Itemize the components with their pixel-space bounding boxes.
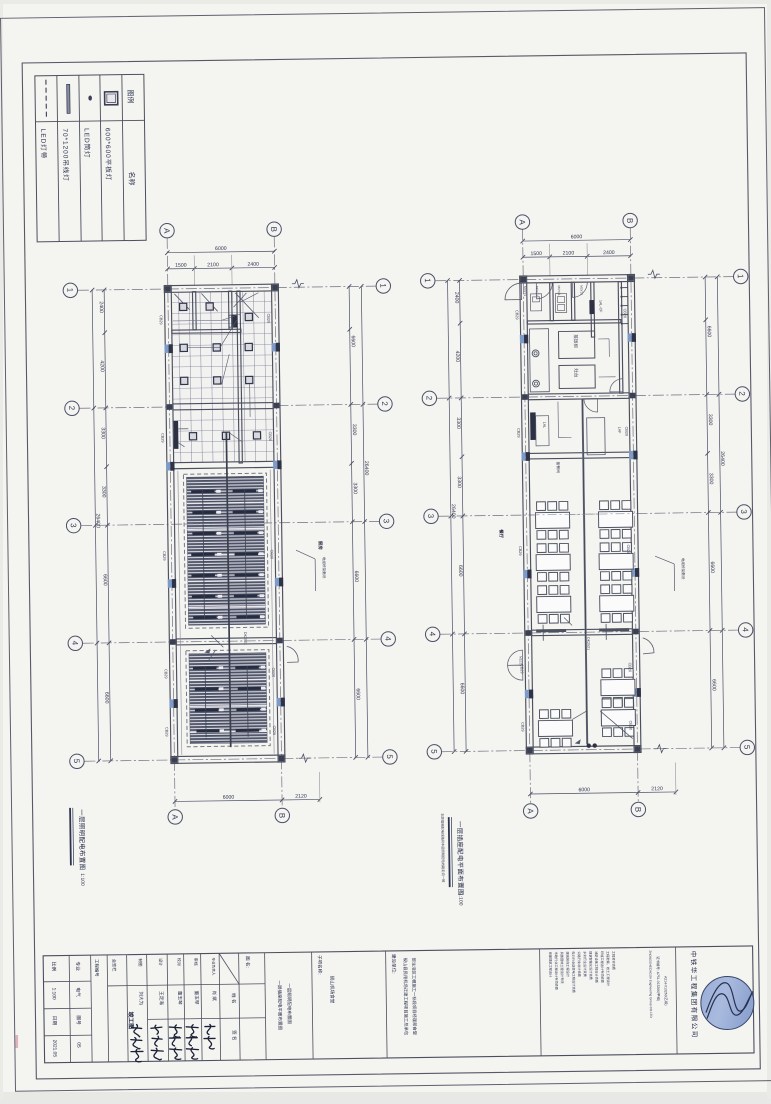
- svg-text:6600: 6600: [457, 565, 463, 577]
- svg-text:B: B: [633, 807, 642, 812]
- svg-text:市政行业工程设计专项资质: 市政行业工程设计专项资质: [554, 952, 560, 991]
- svg-text:6000: 6000: [578, 787, 590, 793]
- svg-text:证书编号: A751-013266(甲级): 证书编号: A751-013266(甲级): [656, 956, 662, 1001]
- svg-text:1AF: 1AF: [617, 427, 621, 434]
- svg-text:1:100: 1:100: [457, 893, 463, 906]
- svg-text:CB20: CB20: [269, 550, 273, 560]
- svg-text:6600: 6600: [103, 692, 109, 704]
- svg-text:CB29: CB29: [164, 727, 168, 737]
- svg-text:A: A: [170, 814, 179, 820]
- svg-text:公路行业设计资质: 公路行业设计资质: [577, 951, 582, 977]
- svg-text:2021.05: 2021.05: [51, 1040, 57, 1058]
- svg-text:4: 4: [383, 636, 392, 641]
- svg-text:5: 5: [429, 749, 438, 754]
- svg-text:1AL-CF: 1AL-CF: [599, 300, 603, 313]
- svg-text:4: 4: [70, 641, 79, 646]
- svg-text:工程勘察、岩土工程设计: 工程勘察、岩土工程设计: [606, 951, 612, 987]
- svg-text:建筑装饰工程设计: 建筑装饰工程设计: [565, 951, 570, 977]
- svg-text:1:100: 1:100: [79, 873, 85, 886]
- svg-text:CB20: CB20: [271, 668, 275, 678]
- svg-text:4: 4: [428, 632, 437, 637]
- svg-text:26400: 26400: [719, 451, 725, 466]
- svg-text:LED筒灯: LED筒灯: [83, 128, 92, 159]
- svg-text:图例: 图例: [126, 89, 135, 103]
- svg-text:B: B: [625, 218, 634, 223]
- svg-text:A214-013263(乙级): A214-013263(乙级): [663, 976, 668, 1005]
- svg-text:电缆桥架敷设: 电缆桥架敷设: [681, 558, 686, 580]
- svg-text:3: 3: [426, 514, 435, 519]
- svg-text:2100: 2100: [563, 251, 575, 257]
- svg-text:专业负责人: 专业负责人: [211, 957, 216, 975]
- svg-text:26400: 26400: [363, 461, 369, 476]
- svg-text:2: 2: [380, 401, 389, 406]
- svg-text:2: 2: [424, 396, 433, 401]
- svg-text:1: 1: [736, 274, 745, 279]
- svg-text:竣工图: 竣工图: [127, 1012, 135, 1030]
- svg-text:风景园林工程设计专项: 风景园林工程设计专项: [560, 952, 565, 985]
- svg-text:3: 3: [382, 519, 391, 524]
- svg-text:CB20: CB20: [624, 427, 628, 437]
- svg-text:2: 2: [737, 391, 746, 396]
- svg-text:A: A: [162, 228, 171, 234]
- svg-text:6000: 6000: [571, 234, 583, 240]
- svg-text:3300: 3300: [351, 424, 357, 436]
- svg-text:CB29: CB29: [160, 433, 164, 443]
- svg-text:备餐间: 备餐间: [556, 462, 561, 474]
- svg-text:5: 5: [72, 759, 81, 764]
- svg-text:CB20: CB20: [628, 663, 632, 673]
- svg-text:房屋建筑工程设计: 房屋建筑工程设计: [548, 952, 553, 978]
- svg-text:6600: 6600: [706, 326, 712, 338]
- svg-text:2120: 2120: [295, 794, 307, 800]
- svg-text:3300: 3300: [455, 417, 461, 429]
- svg-text:审核: 审核: [193, 958, 199, 966]
- svg-text:1:100: 1:100: [51, 988, 57, 1000]
- svg-text:CB20: CB20: [626, 545, 630, 555]
- svg-text:日期: 日期: [51, 1016, 57, 1026]
- svg-text:5: 5: [385, 754, 394, 759]
- svg-text:电缆桥架敷设: 电缆桥架敷设: [322, 557, 327, 579]
- svg-text:建筑智能化设计资质: 建筑智能化设计资质: [588, 951, 593, 981]
- svg-text:水利行业设计资质: 水利行业设计资质: [583, 951, 588, 977]
- svg-text:2400: 2400: [453, 292, 459, 304]
- svg-text:6600: 6600: [709, 561, 715, 573]
- svg-text:CB29: CB29: [266, 314, 270, 324]
- svg-text:CB20: CB20: [623, 309, 627, 319]
- svg-text:3300: 3300: [352, 482, 358, 494]
- svg-text:3: 3: [739, 509, 748, 514]
- svg-text:2400: 2400: [247, 262, 259, 268]
- svg-text:CB29: CB29: [164, 669, 168, 679]
- svg-text:M0Y21: M0Y21: [579, 285, 583, 295]
- svg-text:CB29: CB29: [162, 551, 166, 561]
- svg-text:图号: 图号: [75, 1015, 81, 1025]
- svg-text:CB29: CB29: [518, 546, 522, 556]
- svg-text:环境工程设计专项资质: 环境工程设计专项资质: [600, 951, 605, 984]
- svg-text:3300: 3300: [100, 486, 106, 498]
- svg-text:1: 1: [423, 278, 432, 283]
- svg-text:2: 2: [67, 406, 76, 411]
- svg-text:6600: 6600: [353, 571, 359, 583]
- svg-text:B: B: [269, 227, 278, 232]
- svg-text:LED灯带: LED灯带: [39, 129, 48, 160]
- svg-text:1: 1: [65, 288, 74, 293]
- svg-text:M0Y21: M0Y21: [557, 286, 561, 296]
- svg-text:4200: 4200: [99, 360, 105, 372]
- svg-text:1: 1: [378, 283, 387, 288]
- svg-text:6600: 6600: [355, 688, 361, 700]
- svg-text:DK2521: DK2521: [243, 632, 247, 645]
- svg-text:CB20: CB20: [268, 432, 272, 442]
- svg-text:CB29: CB29: [272, 726, 276, 736]
- svg-text:6000: 6000: [215, 246, 227, 252]
- svg-text:3300: 3300: [456, 476, 462, 488]
- svg-text:A: A: [517, 219, 526, 225]
- svg-text:6600: 6600: [459, 683, 465, 695]
- svg-text:B: B: [277, 813, 286, 818]
- svg-text:2120: 2120: [651, 786, 663, 792]
- svg-text:6600: 6600: [350, 335, 356, 347]
- svg-text:5: 5: [742, 745, 751, 750]
- svg-text:2400: 2400: [98, 301, 104, 313]
- svg-text:CB29: CB29: [516, 428, 520, 438]
- svg-text:26400: 26400: [450, 504, 456, 519]
- svg-text:消防设施工程设计资质: 消防设施工程设计资质: [594, 951, 599, 984]
- svg-text:05: 05: [75, 1042, 81, 1048]
- svg-text:CB29: CB29: [520, 722, 524, 732]
- svg-text:工程咨询资质: 工程咨询资质: [611, 951, 616, 971]
- svg-text:CB29: CB29: [159, 315, 163, 325]
- svg-text:CB29: CB29: [520, 664, 524, 674]
- svg-text:DK2521: DK2521: [586, 637, 590, 650]
- svg-text:M0Y21: M0Y21: [523, 286, 527, 296]
- svg-text:6600: 6600: [102, 574, 108, 586]
- svg-text:26400: 26400: [94, 513, 100, 528]
- svg-text:1AL: 1AL: [542, 422, 546, 428]
- svg-text:制图: 制图: [138, 958, 144, 966]
- svg-text:1500: 1500: [530, 251, 542, 257]
- svg-text:设计: 设计: [158, 958, 164, 966]
- svg-text:3300: 3300: [707, 414, 713, 426]
- svg-text:名称: 名称: [127, 171, 136, 185]
- svg-text:2100: 2100: [207, 262, 219, 268]
- svg-text:2400: 2400: [603, 250, 615, 256]
- svg-text:3: 3: [69, 523, 78, 528]
- svg-text:电力行业送变电工程设计资质: 电力行业送变电工程设计资质: [571, 951, 577, 993]
- svg-text:CB29: CB29: [515, 310, 519, 320]
- svg-text:3300: 3300: [100, 427, 106, 439]
- svg-text:A: A: [526, 808, 535, 814]
- svg-text:本层插座配电线路同本层照明配电线路走向一致: 本层插座配电线路同本层照明配电线路走向一致: [440, 813, 446, 883]
- svg-text:1500: 1500: [175, 263, 187, 269]
- svg-text:6000: 6000: [223, 795, 235, 801]
- svg-text:M0Y21: M0Y21: [535, 286, 539, 296]
- svg-text:3300: 3300: [708, 473, 714, 485]
- svg-text:4200: 4200: [454, 351, 460, 363]
- svg-text:CB20: CB20: [628, 721, 632, 731]
- svg-text:4: 4: [741, 627, 750, 632]
- svg-text:校对: 校对: [177, 958, 183, 966]
- svg-text:6600: 6600: [711, 679, 717, 691]
